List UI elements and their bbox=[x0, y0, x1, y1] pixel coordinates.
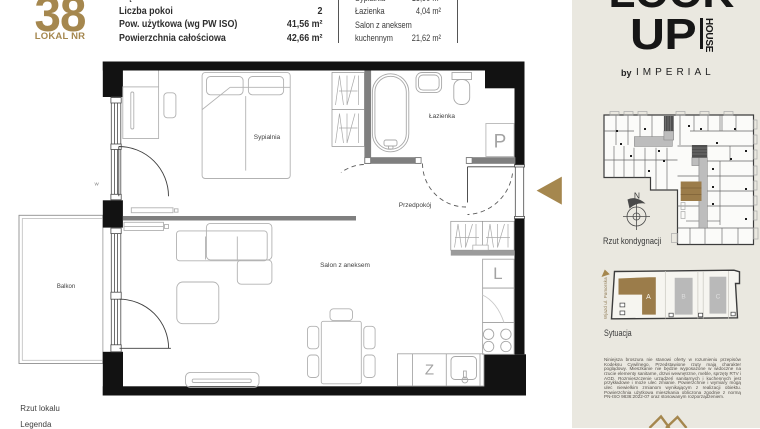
svg-text:Z: Z bbox=[425, 362, 434, 379]
svg-text:B: B bbox=[681, 294, 685, 301]
svg-text:A: A bbox=[646, 294, 651, 301]
svg-text:L: L bbox=[493, 264, 502, 283]
svg-text:P: P bbox=[494, 131, 507, 152]
svg-text:W: W bbox=[95, 182, 100, 187]
svg-text:C: C bbox=[716, 294, 721, 301]
svg-text:N: N bbox=[634, 191, 640, 201]
